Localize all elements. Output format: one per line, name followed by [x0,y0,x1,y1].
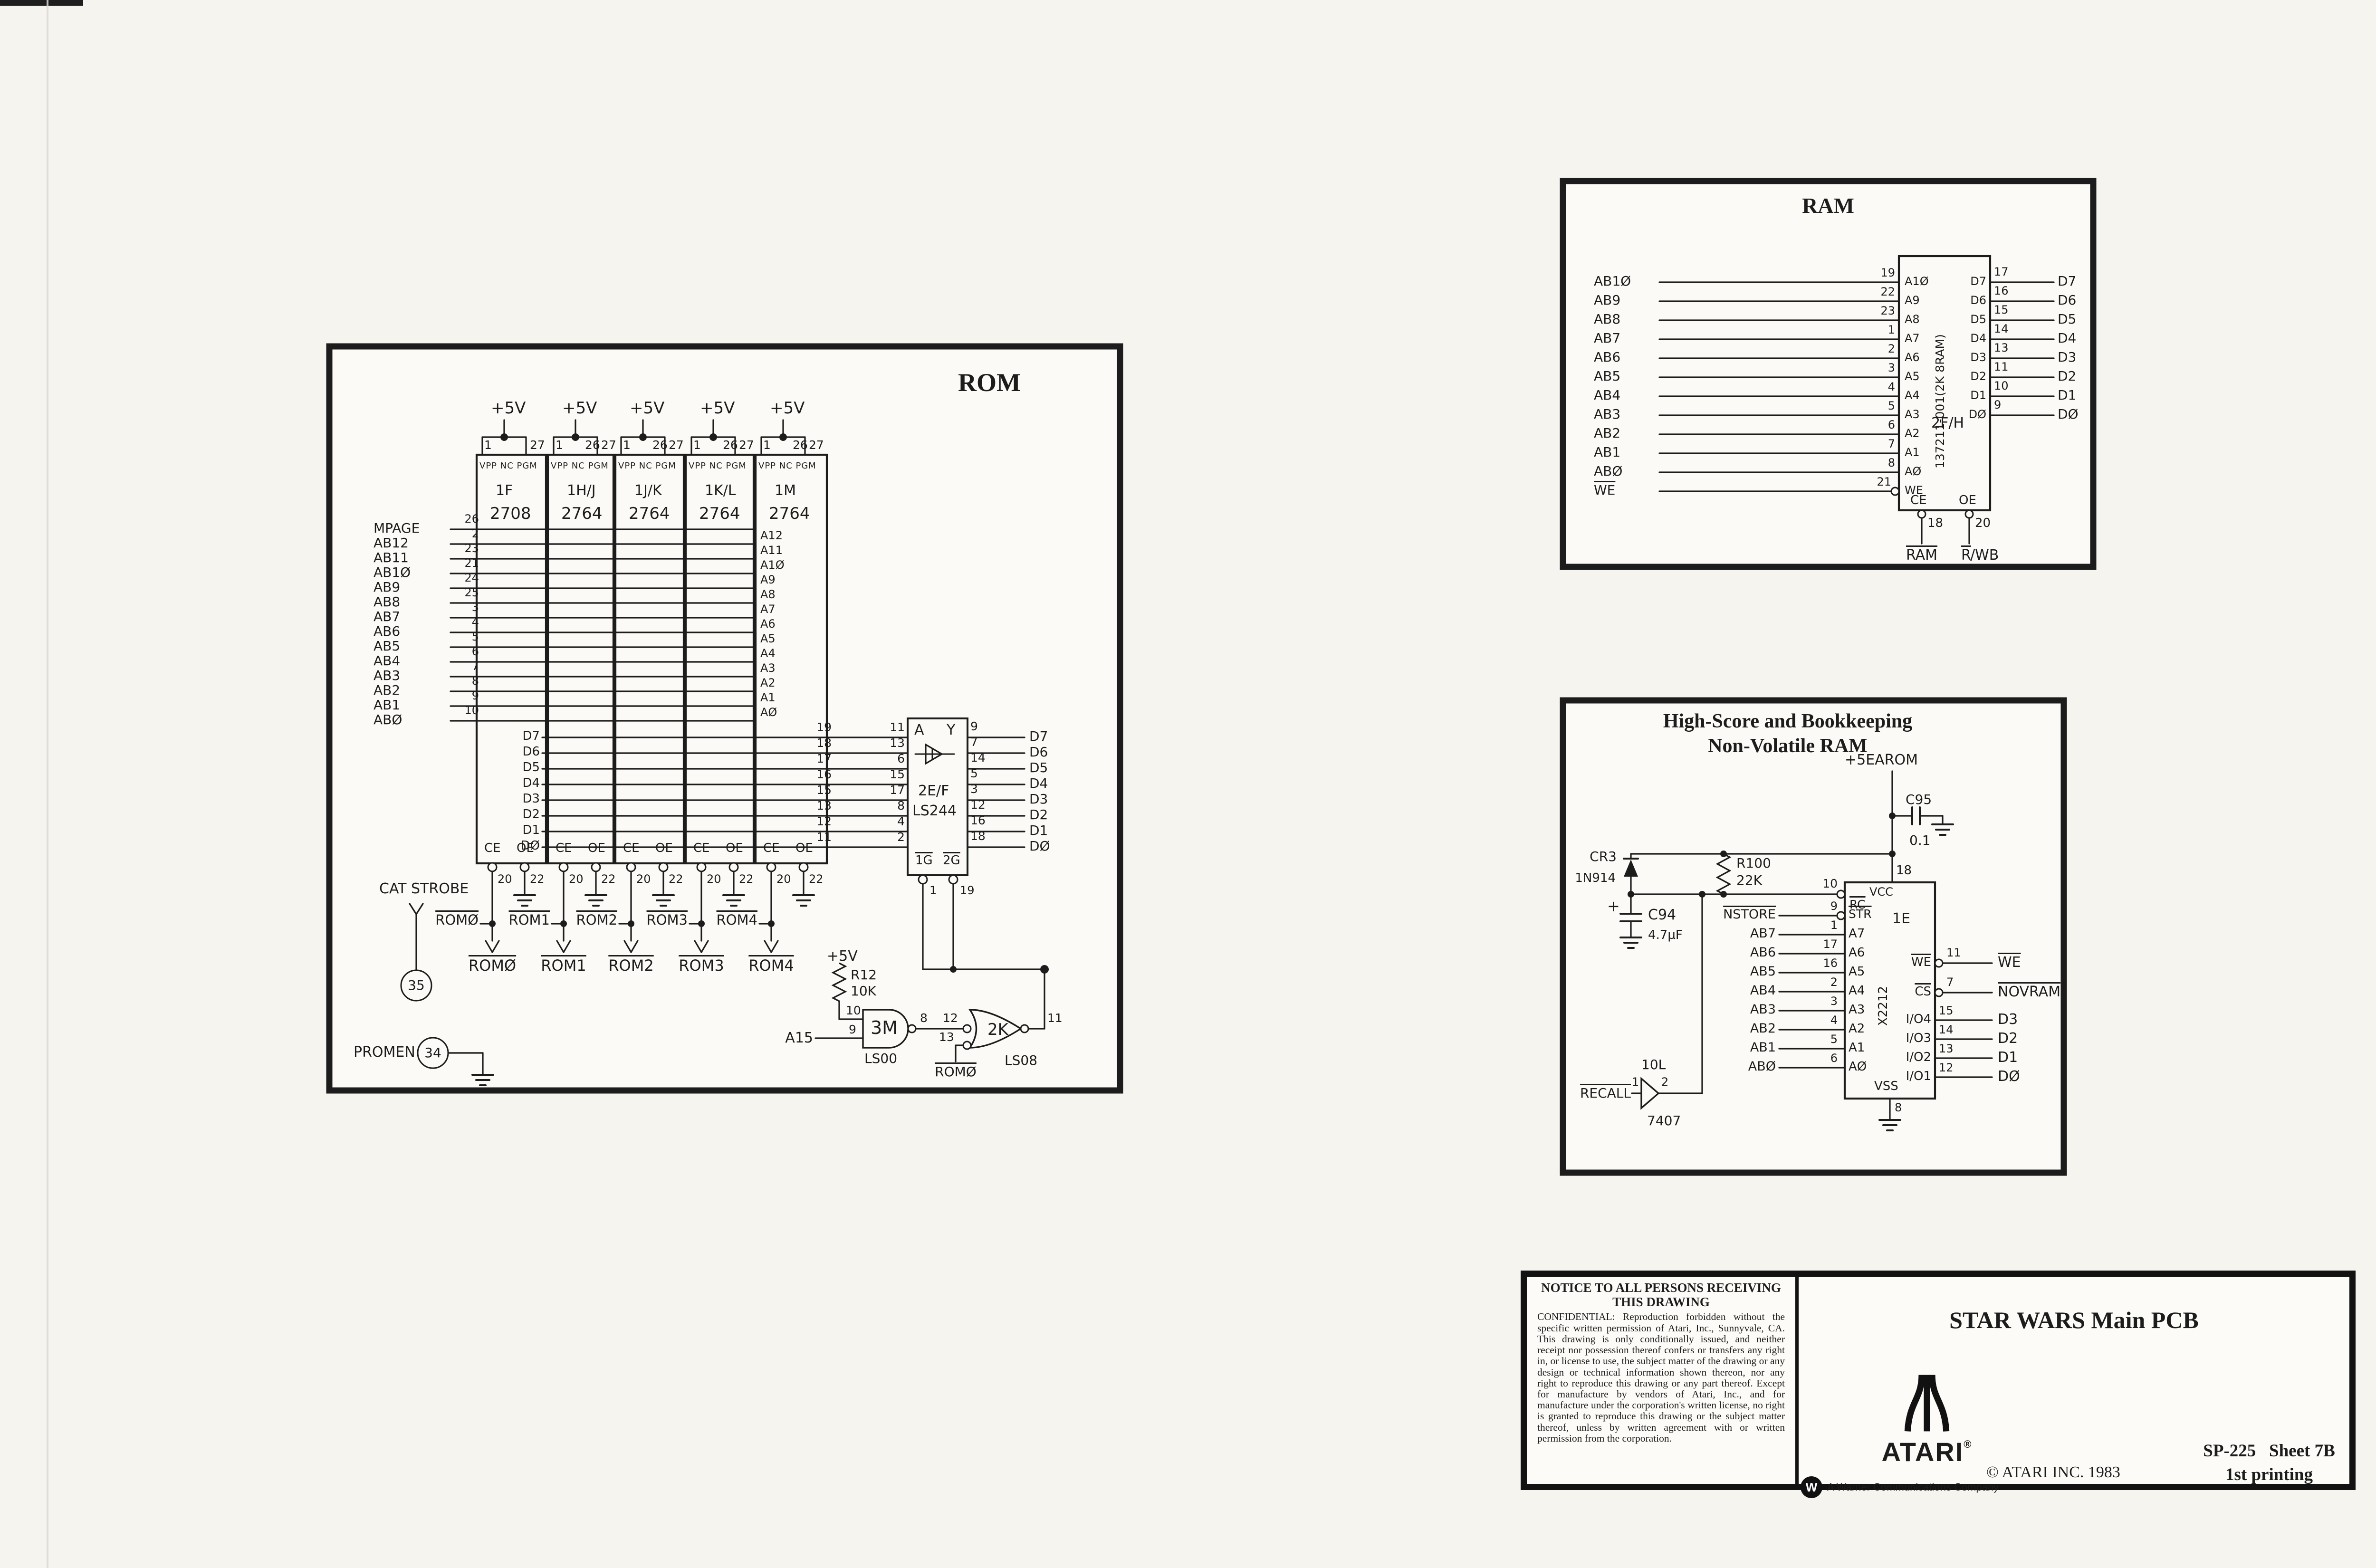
signal-arrow-icon [695,941,708,952]
printing-note: 1st printing [2225,1465,2313,1484]
recall-part: 7407 [1647,1114,1681,1128]
ram-wires-svg [1560,178,2097,570]
rom-output-pin: 15 [816,784,832,796]
r12-ref: R12 [851,968,877,982]
earom-ctrl: WE [1911,956,1931,968]
ram-data-pin: 11 [1994,361,2009,373]
ram-address-label: AB8 [1594,313,1620,326]
ram-chip-address: A8 [1905,314,1920,325]
earom-io: I/O2 [1906,1051,1931,1063]
ram-chip-address: A3 [1905,409,1920,420]
earom-part: X2212 [1877,986,1889,1026]
chip-part-number: 2764 [629,506,670,522]
chip-part-number: 2708 [490,506,531,522]
title-panel: STAR WARS Main PCB ATARI® © ATARI INC. 1… [1799,1277,2349,1484]
rom-address-label: AB4 [374,654,400,668]
rom-address-pin: 10 [464,705,479,716]
atari-wordmark: ATARI® [1870,1436,1984,1467]
ground-icon [585,895,606,906]
ram-chip-data: DØ [1969,409,1986,420]
ram-data-pin: 16 [1994,285,2009,296]
chip-pin27: 27 [669,439,684,451]
nvram-input-label: AB6 [1750,946,1776,959]
chip-pin26: 26 [652,439,668,451]
nand-pin10: 10 [846,1004,861,1016]
promen-label: PROMEN [354,1045,415,1060]
data-bus-label: D6 [1029,746,1048,759]
connector-34: 34 [424,1046,441,1060]
nvram-input-pin: 4 [1830,1014,1838,1026]
ram-designator: 2F/H [1931,416,1964,430]
rom-data-label: D6 [522,746,540,758]
nvram-input-pin: 1 [1830,919,1838,931]
rom-address-pin: 3 [472,602,479,613]
rom-output-pin: 12 [816,815,832,827]
chip-designator: 1M [775,484,796,498]
chip-pin27: 27 [809,439,824,451]
ram-address-label: AB6 [1594,351,1620,364]
gate-plus5: +5V [827,949,858,964]
buffer-input-pin: 6 [897,753,905,765]
ram-chip-address: A2 [1905,428,1920,439]
ram-rw-signal: /WB [1970,548,1999,563]
chip-ce: CE [623,842,640,854]
buffer-1g-pin: 1 [929,885,937,896]
recall-designator: 10L [1641,1058,1666,1071]
gate-rom0-label: ROMØ [935,1065,977,1079]
rom-address-label: AB5 [374,640,400,653]
chip-header: VPP NC PGM [758,462,816,470]
c94-ref: C94 [1648,908,1676,922]
rom-1m-internal-address: A3 [760,662,776,674]
signal-arrow-icon [765,941,778,952]
rom-address-pin: 24 [464,572,479,583]
buffer-input-pin: 8 [897,800,905,812]
rom-output-pin: 16 [816,768,832,780]
earom-address: AØ [1849,1061,1867,1073]
ground-icon [1932,824,1953,835]
rom-1m-internal-address: A9 [760,574,776,585]
buffer-1g: 1G [915,854,933,867]
buffer-output-pin: 18 [970,830,986,842]
connector-35: 35 [408,979,425,992]
earom-address: A6 [1849,947,1865,959]
warner-communications-icon: W [1801,1476,1822,1498]
ground-icon [653,895,674,906]
ram-chip-data: D2 [1970,371,1986,382]
ram-chip-address: AØ [1905,466,1921,477]
ram-address-pin: 19 [1880,267,1895,278]
rom-output-pin: 17 [816,753,832,765]
and-pin11: 11 [1047,1012,1063,1024]
ram-we-label: WE [1594,484,1615,497]
rom-1m-internal-address: A1Ø [760,559,785,571]
chip-part-number: 2764 [561,506,603,522]
buffer-input-pin: 13 [890,737,905,749]
rom-address-label: AB11 [374,551,409,564]
chip-pin1: 1 [556,439,563,451]
nand-ref: 3M [871,1019,898,1037]
chip-pin27: 27 [601,439,616,451]
rom-address-pin: 5 [472,631,479,642]
buffer-input-pin: 15 [890,768,905,780]
ram-oe-pin: 20 [1975,517,1991,529]
chip-ce-pin: 20 [498,873,512,885]
c95-value: 0.1 [1909,834,1931,847]
earom-vss-pin: 8 [1895,1102,1902,1113]
nvram-ctrl-pin: 7 [1946,976,1954,988]
data-bus-label: D3 [1029,793,1048,806]
rom-1m-internal-address: A5 [760,633,776,644]
ram-address-pin: 23 [1880,305,1895,316]
and-ref: 2K [987,1022,1008,1038]
chip-pin26: 26 [585,439,600,451]
buffer-input-pin: 17 [890,784,905,796]
chip-pin1: 1 [763,439,771,451]
ram-data-bus: D4 [2058,332,2076,345]
data-bus-label: D7 [1029,730,1048,743]
plus5v-label: +5V [630,400,664,416]
rom-output-pin: 18 [816,737,832,749]
atari-fuji-icon [1899,1372,1955,1434]
ram-data-pin: 9 [1994,399,2001,411]
rom-address-label: AB7 [374,610,400,623]
nvram-input-label: ABØ [1748,1060,1776,1073]
rom-data-label: D7 [522,730,540,742]
warner-logo-row: W A Warner Communications Company [1801,1476,1999,1498]
nvram-input-label: AB7 [1750,927,1776,940]
chip-header: VPP NC PGM [689,462,747,470]
ram-address-label: AB2 [1594,427,1620,440]
nvram-input-pin: 17 [1823,938,1838,950]
chip-oe: OE [655,842,673,854]
earom-io: I/O1 [1906,1070,1931,1082]
ram-address-pin: 3 [1888,362,1895,373]
doc-number: SP-225 [2203,1441,2256,1461]
rom-1m-internal-address: A12 [760,530,783,541]
rom-select-name: ROM3 [679,958,724,973]
earom-vcc-pin: 18 [1896,864,1912,877]
buffer-y-label: Y [947,723,955,737]
ram-ce: CE [1910,494,1927,507]
cr3-ref: CR3 [1590,850,1617,863]
rom-select-name: ROM2 [608,958,653,973]
rom-data-label: D4 [522,777,540,789]
ram-address-label: AB7 [1594,332,1620,345]
cat-strobe-label: CAT STROBE [379,882,469,896]
plus5v-label: +5V [770,400,805,416]
ram-schematic-panel: RAMAB1Ø19A1ØAB922A9AB823A8AB71A7AB62A6AB… [1560,178,2097,570]
rom-address-pin: 8 [472,675,479,687]
copyright-text: © ATARI INC. 1983 [1986,1463,2120,1482]
data-bus-label: D2 [1029,808,1048,822]
ground-icon [514,895,535,906]
ram-address-pin: 6 [1888,419,1895,430]
r100-ref: R100 [1736,857,1771,870]
ram-we-pin: 21 [1877,476,1891,488]
a15-label: A15 [785,1031,813,1045]
ram-chip-data: D6 [1970,295,1986,306]
title-block: NOTICE TO ALL PERSONS RECEIVING THIS DRA… [1521,1271,2356,1490]
chip-ce-pin: 20 [636,873,651,885]
plus5v-label: +5V [700,400,735,416]
rom-address-label: AB2 [374,684,400,697]
nvram-data-pin: 12 [1939,1062,1954,1073]
ram-chip-address: A1 [1905,447,1920,458]
rom-output-pin: 11 [816,831,832,843]
nvram-input-label: AB4 [1750,984,1776,997]
c94-polarity: + [1607,899,1620,914]
nand-pin8: 8 [920,1012,928,1024]
drawing-title: STAR WARS Main PCB [1799,1306,2349,1334]
rom-address-label: AB12 [374,536,409,550]
chip-oe: OE [517,842,534,854]
schematic-page: { "rom": { "title": "ROM", "plus5": "+5V… [0,0,2376,1568]
rom-address-pin: 23 [464,543,479,554]
earom-address: A2 [1849,1023,1865,1035]
rom-select-inline: ROM2 [576,913,617,927]
nvram-ctrl-pin: 11 [1946,947,1961,958]
ram-chip-address: A7 [1905,333,1920,344]
buffer-designator: 2E/F [918,784,949,798]
buffer-2g-pin: 19 [960,885,975,896]
r12-value: 10K [851,985,876,998]
chip-ce: CE [484,842,501,854]
ram-address-pin: 2 [1888,343,1895,354]
chip-pin1: 1 [693,439,701,451]
buffer-output-pin: 16 [970,814,986,826]
data-bus-label: D4 [1029,777,1048,790]
nvram-title-line1: High-Score and Bookkeeping [1663,711,1912,731]
rom-address-label: AB1 [374,698,400,712]
rom-address-pin: 7 [472,660,479,672]
chip-oe: OE [726,842,743,854]
nvram-ctrl-signal: NOVRAM [1998,985,2060,999]
buffer-a-label: A [914,723,924,737]
ram-chip-data: D5 [1970,314,1986,325]
ram-data-pin: 10 [1994,380,2009,392]
ram-data-bus: D5 [2058,313,2076,326]
warner-caption: A Warner Communications Company [1827,1481,1999,1493]
nvram-input-label: AB5 [1750,965,1776,978]
c94-value: 4.7µF [1648,929,1683,941]
rom-output-pin: 19 [816,721,832,733]
nvram-ctrl-signal: WE [1998,956,2021,970]
nand-pin9: 9 [849,1023,856,1035]
signal-arrow-icon [624,941,638,952]
chip-pin1: 1 [623,439,631,451]
ram-rw-signal-r: R [1961,548,1971,563]
ground-icon [1879,1120,1900,1130]
notice-title: NOTICE TO ALL PERSONS RECEIVING THIS DRA… [1537,1281,1785,1309]
earom-address: A1 [1849,1042,1865,1054]
rom-data-label: D5 [522,761,540,774]
nvram-input-pin: 6 [1830,1052,1838,1064]
scan-edge-artifact-top [0,0,83,6]
ram-chip-address: A4 [1905,390,1920,401]
r100-value: 22K [1736,874,1762,887]
ram-oe: OE [1959,494,1976,507]
chip-pin26: 26 [793,439,808,451]
plus5v-label: +5V [562,400,597,416]
chip-header: VPP NC PGM [551,462,609,470]
earom-vcc: VCC [1869,886,1893,898]
rom-1m-internal-address: A7 [760,603,776,615]
rom-data-label: D3 [522,793,540,805]
ram-data-bus: D6 [2058,294,2076,307]
buffer-input-pin: 11 [890,721,905,733]
ram-address-pin: 4 [1888,381,1895,392]
ram-address-label: AB9 [1594,294,1620,307]
nvram-input-pin: 2 [1830,976,1838,988]
plus5v-label: +5V [491,400,526,416]
rom-output-pin: 13 [816,800,832,812]
rom-address-label: AB6 [374,625,400,638]
atari-logo: ATARI® [1870,1372,1984,1467]
ram-part-number: 137211-001(2K 8RAM) [1934,334,1946,468]
ram-chip-data: D7 [1970,276,1986,287]
ram-address-label: AB1 [1594,446,1620,459]
nvram-input-label: NSTORE [1723,908,1776,921]
buffer-input-pin: 4 [897,815,905,827]
rom-address-label: MPAGE [374,522,420,535]
earom-address: A4 [1849,985,1865,997]
chip-ce: CE [556,842,572,854]
buffer-input-pin: 2 [897,831,905,843]
rom-address-pin: 4 [472,616,479,628]
rom-address-label: AB3 [374,669,400,682]
rom-1m-internal-address: A6 [760,618,776,630]
recall-pin2: 2 [1661,1076,1668,1088]
rom-address-label: AB8 [374,595,400,609]
nvram-input-pin: 9 [1830,900,1838,912]
earom-address: A7 [1849,927,1865,940]
rom-panel-title: ROM [958,370,1021,395]
ram-address-pin: 5 [1888,400,1895,411]
ram-address-pin: 1 [1888,324,1895,335]
nvram-data-pin: 13 [1939,1043,1954,1054]
rom-1m-internal-address: A1 [760,692,776,703]
ground-icon [793,895,814,906]
data-bus-label: D1 [1029,824,1048,837]
sheet-number: Sheet 7B [2269,1441,2335,1461]
chip-part-number: 2764 [699,506,740,522]
ram-data-pin: 15 [1994,304,2009,316]
rom-address-pin: 6 [472,646,479,657]
chip-pin26: 26 [723,439,738,451]
chip-oe-pin: 22 [530,873,545,885]
nvram-wires-svg [1560,697,2067,1176]
rom-address-pin: 21 [464,557,479,569]
signal-arrow-icon [557,941,570,952]
nvram-schematic-panel: High-Score and BookkeepingNon-Volatile R… [1560,697,2067,1176]
ground-icon [1620,937,1641,948]
earom-str: STR [1849,908,1872,920]
chip-oe-pin: 22 [809,873,824,885]
buffer-output-pin: 7 [970,736,978,748]
chip-ce-pin: 20 [569,873,584,885]
nvram-data-bus: D3 [1998,1013,2018,1027]
rom-select-name: ROMØ [469,958,516,973]
ram-address-label: AB1Ø [1594,275,1631,288]
ground-icon [723,895,744,906]
and-part: LS08 [1005,1054,1037,1067]
diode-icon [1624,860,1638,877]
ground-icon [472,1075,493,1085]
chip-oe: OE [795,842,813,854]
rom-1m-internal-address: A4 [760,648,776,659]
rom-1m-internal-address: A8 [760,589,776,600]
notice-title-line1: NOTICE TO ALL PERSONS RECEIVING [1541,1281,1781,1295]
chip-designator: 1H/J [567,484,596,498]
buffer-output-pin: 14 [970,752,986,764]
chip-oe-pin: 22 [739,873,754,885]
earom-address: A5 [1849,966,1865,978]
rom-address-pin: 26 [464,513,479,525]
ram-address-label: AB4 [1594,389,1620,402]
rom-select-inline: ROM1 [509,913,550,927]
nvram-title-line2: Non-Volatile RAM [1708,736,1868,756]
ram-address-pin: 7 [1888,438,1895,449]
nvram-data-bus: D1 [1998,1051,2018,1065]
rom-address-label: ABØ [374,713,402,727]
ram-data-pin: 13 [1994,342,2009,354]
buffer-output-pin: 3 [970,783,978,795]
ram-address-pin: 8 [1888,457,1895,468]
ram-panel-title: RAM [1802,195,1854,217]
chip-designator: 1J/K [634,484,662,498]
earom-ctrl: CS [1915,985,1931,998]
rom-select-name: ROM1 [541,958,586,973]
ram-chip-data: D1 [1970,390,1986,401]
rom-select-inline: ROM3 [647,913,688,927]
doc-number-block: SP-225 Sheet 7B 1st printing [2193,1439,2345,1487]
nvram-input-label: AB1 [1750,1041,1776,1054]
rom-address-pin: 9 [472,690,479,701]
chip-ce: CE [693,842,710,854]
chip-oe-pin: 22 [669,873,683,885]
data-bus-label: DØ [1029,840,1050,853]
rom-select-name: ROM4 [748,958,794,973]
recall-pin1: 1 [1632,1076,1639,1088]
ram-address-label: AB3 [1594,408,1620,421]
buffer-output-pin: 9 [970,720,978,732]
notice-panel: NOTICE TO ALL PERSONS RECEIVING THIS DRA… [1527,1277,1799,1484]
ram-chip-address: A9 [1905,295,1920,306]
nand-part: LS00 [864,1052,897,1065]
and-pin13: 13 [939,1031,954,1043]
cr3-value: 1N914 [1575,872,1616,884]
ram-chip-address: A1Ø [1905,276,1929,287]
notice-body: CONFIDENTIAL: Reproduction forbidden wit… [1537,1311,1785,1444]
rom-select-inline: ROMØ [435,913,479,927]
ram-chip-data: D4 [1970,333,1986,344]
ram-data-bus: DØ [2058,408,2079,421]
rom-data-label: D2 [522,808,540,821]
rom-address-label: AB1Ø [374,566,411,579]
rom-address-label: AB9 [374,581,400,594]
ram-chip-address: A5 [1905,371,1920,382]
earom-rc-pin: 10 [1822,878,1838,889]
rom-schematic-panel: ROMMPAGE26AB122AB1123AB1Ø21AB924AB825AB7… [326,343,1123,1094]
nvram-input-label: AB3 [1750,1003,1776,1016]
rom-data-label: D1 [522,824,540,836]
rom-1m-internal-address: A11 [760,545,783,556]
earom-address: A3 [1849,1004,1865,1016]
rom-address-pin: 25 [464,587,479,598]
data-bus-label: D5 [1029,761,1048,774]
chip-header: VPP NC PGM [479,462,537,470]
